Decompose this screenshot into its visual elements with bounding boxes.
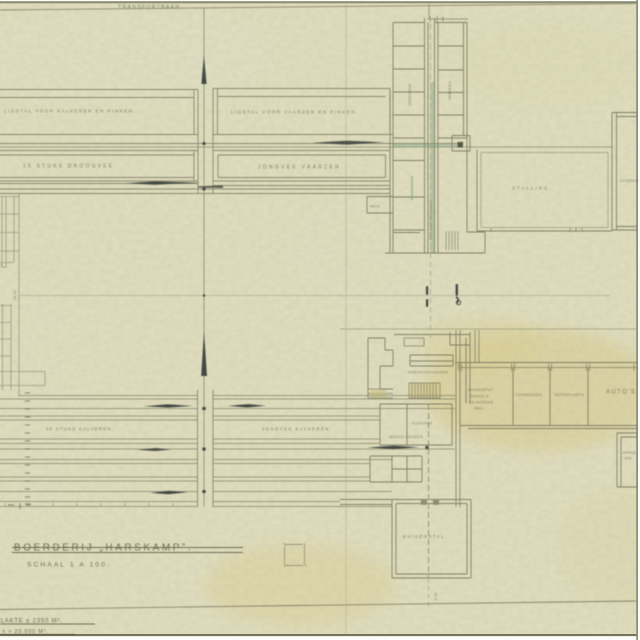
svg-text:SPROEI &: SPROEI &	[470, 395, 489, 399]
svg-text:HOK: HOK	[624, 457, 632, 461]
svg-text:KIPPEN: KIPPEN	[623, 451, 636, 455]
svg-text:SCHAAL 1 A 100.: SCHAAL 1 A 100.	[27, 562, 111, 569]
svg-text:STALLING.: STALLING.	[512, 186, 553, 191]
svg-text:VARKENS: VARKENS	[448, 81, 452, 100]
svg-text:STIEREN: STIEREN	[620, 179, 638, 183]
svg-text:MELK: MELK	[370, 205, 380, 209]
svg-text:EN MODDER: EN MODDER	[469, 401, 493, 405]
svg-text:9.00: 9.00	[434, 593, 438, 600]
svg-text:JONGVEE VAARZEN.: JONGVEE VAARZEN.	[258, 165, 345, 171]
svg-text:WASCH KEUKEN: WASCH KEUKEN	[389, 435, 423, 439]
svg-text:TRANSPORTBAAN: TRANSPORTBAAN	[429, 200, 433, 240]
svg-text:BERGPLAATS: BERGPLAATS	[555, 393, 584, 397]
svg-text:KUIKENSTAL.: KUIKENSTAL.	[403, 534, 448, 539]
svg-text:LIGSTAL VOOR KALVEREN EN PINKE: LIGSTAL VOOR KALVEREN EN PINKEN.	[4, 109, 136, 114]
svg-text:JONGVEE KALVEREN.: JONGVEE KALVEREN.	[262, 427, 333, 432]
svg-text:25.00: 25.00	[13, 290, 17, 300]
svg-text:30 STUKS KALVEREN.: 30 STUKS KALVEREN.	[46, 427, 114, 432]
svg-text:LIGSTAL VOOR VAARZEN EN PINKEN: LIGSTAL VOOR VAARZEN EN PINKEN.	[231, 110, 359, 115]
svg-text:TUINWAGEN.: TUINWAGEN.	[515, 393, 543, 397]
svg-text:WAG.: WAG.	[474, 407, 484, 411]
svg-text:TERREIN ± ≈ 20.000 M².: TERREIN ± ≈ 20.000 M².	[0, 629, 49, 635]
svg-text:KOOKHOK: KOOKHOK	[412, 422, 433, 426]
svg-text:BEBOUWDE OPPERVLAKTE ± 2350 M²: BEBOUWDE OPPERVLAKTE ± 2350 M².	[0, 619, 63, 625]
svg-text:BOERDERIJ „HARSKAMP”.: BOERDERIJ „HARSKAMP”.	[14, 543, 193, 554]
svg-text:BRANDSPUIT: BRANDSPUIT	[468, 388, 494, 392]
svg-text:TRANSPORTBAAN.: TRANSPORTBAAN.	[118, 4, 183, 10]
svg-text:15 STUKS DROOGVEE.: 15 STUKS DROOGVEE.	[23, 164, 118, 170]
svg-text:AUTO'S: AUTO'S	[606, 390, 636, 396]
svg-text:VOERGANG: VOERGANG	[408, 83, 412, 106]
svg-text:HOENDERHOKKEN.: HOENDERHOKKEN.	[408, 371, 450, 375]
